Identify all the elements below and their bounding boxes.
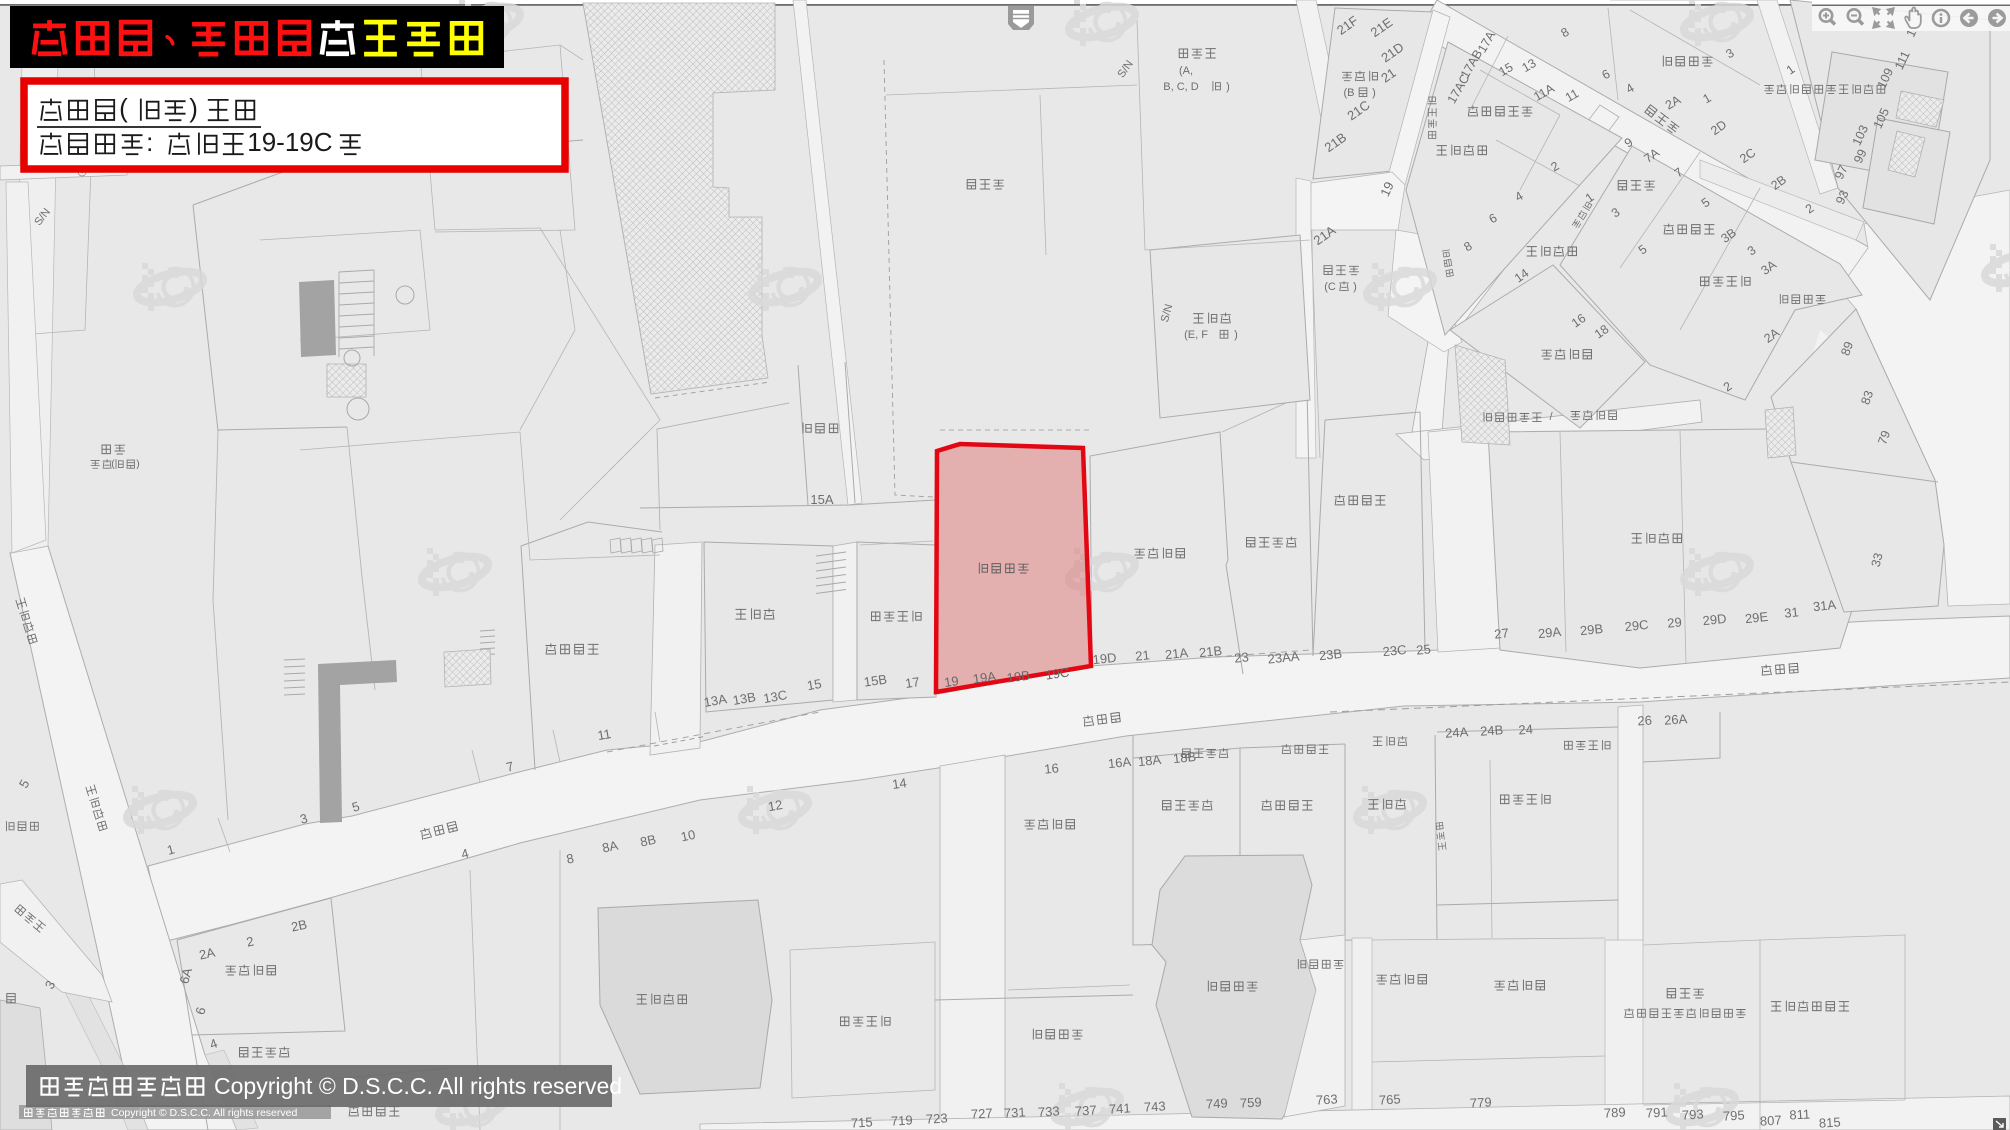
svg-text::: : [146, 127, 153, 157]
svg-text:815: 815 [1819, 1114, 1841, 1130]
svg-text:15B: 15B [863, 672, 888, 690]
svg-text:795: 795 [1723, 1107, 1745, 1123]
svg-text:807: 807 [1760, 1112, 1782, 1128]
svg-text:723: 723 [926, 1110, 948, 1126]
svg-text:21B: 21B [1198, 643, 1223, 660]
svg-text:26: 26 [1637, 713, 1652, 729]
svg-text:16A: 16A [1107, 754, 1132, 771]
svg-text:27: 27 [1494, 625, 1510, 641]
svg-text:719: 719 [891, 1112, 913, 1128]
svg-text:24A: 24A [1445, 724, 1469, 741]
svg-text:14: 14 [891, 775, 907, 792]
svg-text:): ) [1353, 281, 1357, 293]
svg-text:23: 23 [1234, 649, 1250, 665]
svg-text:23C: 23C [1382, 642, 1407, 659]
svg-text:Copyright © D.S.C.C. All right: Copyright © D.S.C.C. All rights reserved [214, 1073, 622, 1099]
svg-text:19-19C: 19-19C [247, 127, 332, 157]
svg-text:(B: (B [1344, 87, 1355, 99]
svg-text:743: 743 [1144, 1098, 1166, 1114]
svg-text:731: 731 [1004, 1104, 1026, 1120]
svg-text:): ) [189, 93, 198, 123]
svg-text:(: ( [111, 458, 115, 470]
svg-text:29A: 29A [1537, 624, 1562, 641]
svg-text:24B: 24B [1480, 722, 1504, 739]
svg-text:15A: 15A [810, 492, 833, 507]
svg-text:(: ( [119, 93, 128, 123]
svg-text:791: 791 [1646, 1104, 1668, 1120]
svg-text:18B: 18B [1172, 749, 1197, 766]
svg-text:16: 16 [1044, 760, 1060, 776]
svg-text:765: 765 [1379, 1091, 1401, 1107]
svg-text:759: 759 [1240, 1094, 1262, 1110]
svg-text:B, C, D: B, C, D [1163, 81, 1199, 93]
svg-text:25: 25 [1416, 641, 1432, 657]
svg-text:19: 19 [943, 673, 959, 690]
svg-text:29D: 29D [1702, 611, 1727, 628]
svg-text:29B: 29B [1579, 621, 1604, 638]
svg-text:(C: (C [1324, 281, 1336, 293]
svg-text:29C: 29C [1624, 617, 1649, 634]
svg-text:18A: 18A [1137, 752, 1162, 769]
svg-text:21: 21 [1135, 647, 1151, 663]
svg-text:): ) [136, 458, 140, 470]
svg-text:31: 31 [1784, 604, 1800, 620]
svg-text:11: 11 [596, 726, 612, 743]
svg-text:): ) [1226, 81, 1230, 93]
svg-text:19D: 19D [1092, 650, 1117, 667]
svg-text:26A: 26A [1664, 711, 1688, 728]
svg-text:727: 727 [971, 1105, 993, 1121]
svg-text:763: 763 [1316, 1091, 1338, 1107]
svg-text:15: 15 [806, 676, 823, 693]
svg-text:741: 741 [1109, 1100, 1131, 1116]
svg-text:737: 737 [1075, 1102, 1097, 1118]
svg-text:Copyright © D.S.C.C. All right: Copyright © D.S.C.C. All rights reserved [111, 1107, 297, 1119]
svg-text:10: 10 [679, 827, 696, 845]
svg-text:779: 779 [1470, 1094, 1492, 1110]
svg-text:715: 715 [851, 1114, 873, 1130]
svg-text:733: 733 [1038, 1103, 1060, 1119]
svg-text:24: 24 [1518, 722, 1533, 738]
svg-text:29: 29 [1667, 614, 1683, 630]
svg-text:12: 12 [767, 797, 784, 814]
svg-text:17: 17 [904, 674, 920, 691]
svg-text:793: 793 [1682, 1106, 1704, 1122]
svg-text:(A,: (A, [1179, 65, 1193, 77]
svg-text:29E: 29E [1744, 609, 1769, 626]
svg-text:749: 749 [1206, 1095, 1228, 1111]
svg-text:): ) [1234, 329, 1238, 341]
svg-text:23B: 23B [1318, 646, 1343, 663]
svg-text:19B: 19B [1006, 668, 1031, 686]
svg-text:789: 789 [1604, 1104, 1626, 1120]
svg-text:): ) [1372, 87, 1376, 99]
svg-text:(E, F: (E, F [1184, 329, 1208, 341]
svg-text:21A: 21A [1164, 645, 1189, 662]
svg-text:811: 811 [1789, 1106, 1810, 1122]
svg-text:31A: 31A [1812, 597, 1837, 614]
